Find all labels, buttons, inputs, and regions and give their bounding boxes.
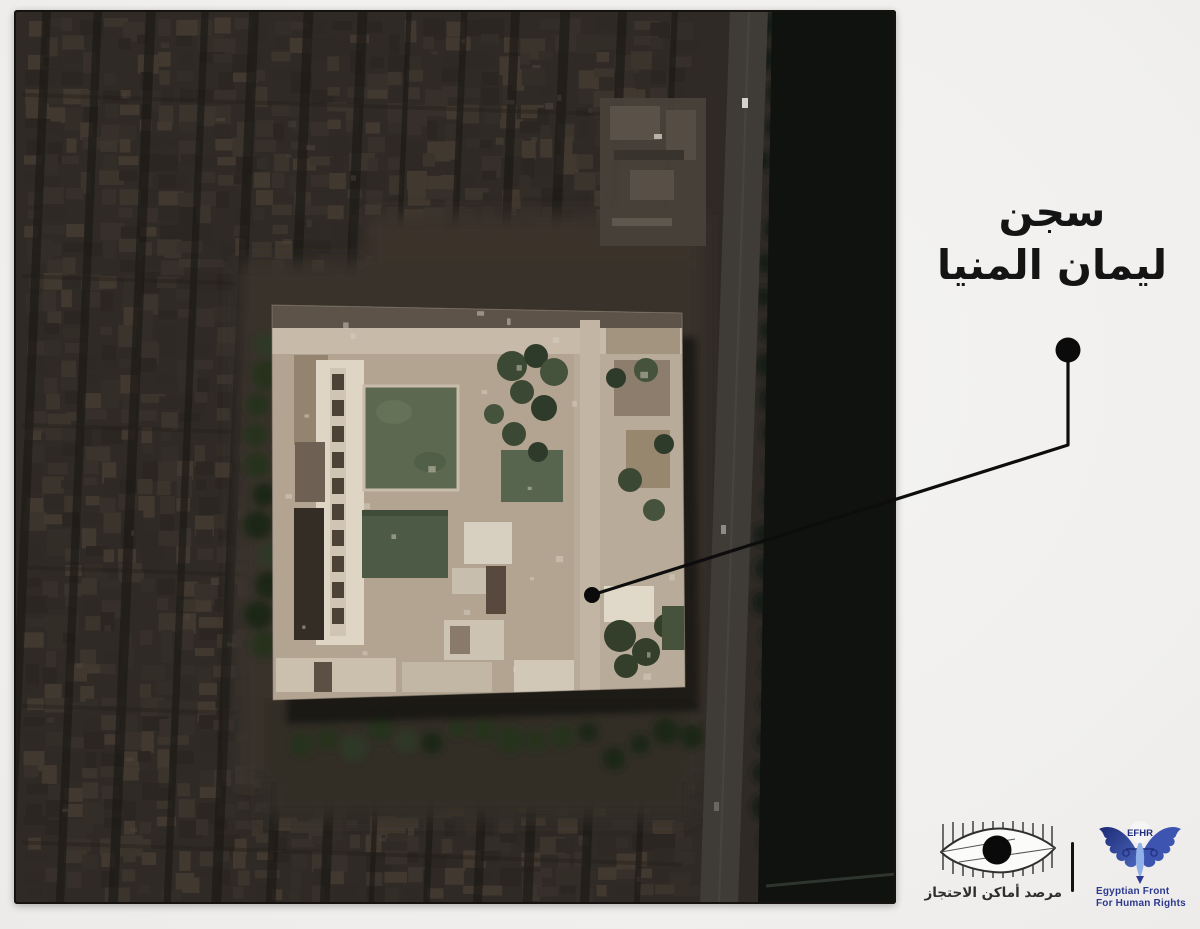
satellite-image-canvas — [14, 10, 896, 904]
logo-divider — [1071, 842, 1074, 892]
prison-name-label: سجن ليمان المنيا — [918, 186, 1186, 292]
efhr-acronym: EFHR — [1127, 828, 1153, 839]
efhr-eagle-icon: EFHR — [1092, 820, 1188, 884]
efhr-logo: EFHR Egyptian Front For Human Rights — [1092, 820, 1188, 909]
eye-behind-bars-icon — [935, 820, 1061, 882]
efhr-name-line2: For Human Rights — [1096, 898, 1188, 910]
prison-compound-inset — [269, 302, 689, 704]
satellite-image — [14, 10, 896, 904]
detention-observatory-label: مرصد أماكن الاحتجاز — [934, 885, 1062, 901]
prison-name-line2: ليمان المنيا — [918, 239, 1186, 292]
detention-observatory-logo: مرصد أماكن الاحتجاز — [934, 820, 1062, 901]
efhr-name-line1: Egyptian Front — [1096, 886, 1188, 898]
callout-endpoint-dot — [1056, 338, 1081, 363]
annotated-satellite-graphic: سجن ليمان المنيا مرصد أماكن الاحتجاز — [0, 0, 1200, 929]
efhr-name: Egyptian Front For Human Rights — [1092, 886, 1188, 909]
prison-name-line1: سجن — [918, 186, 1186, 239]
